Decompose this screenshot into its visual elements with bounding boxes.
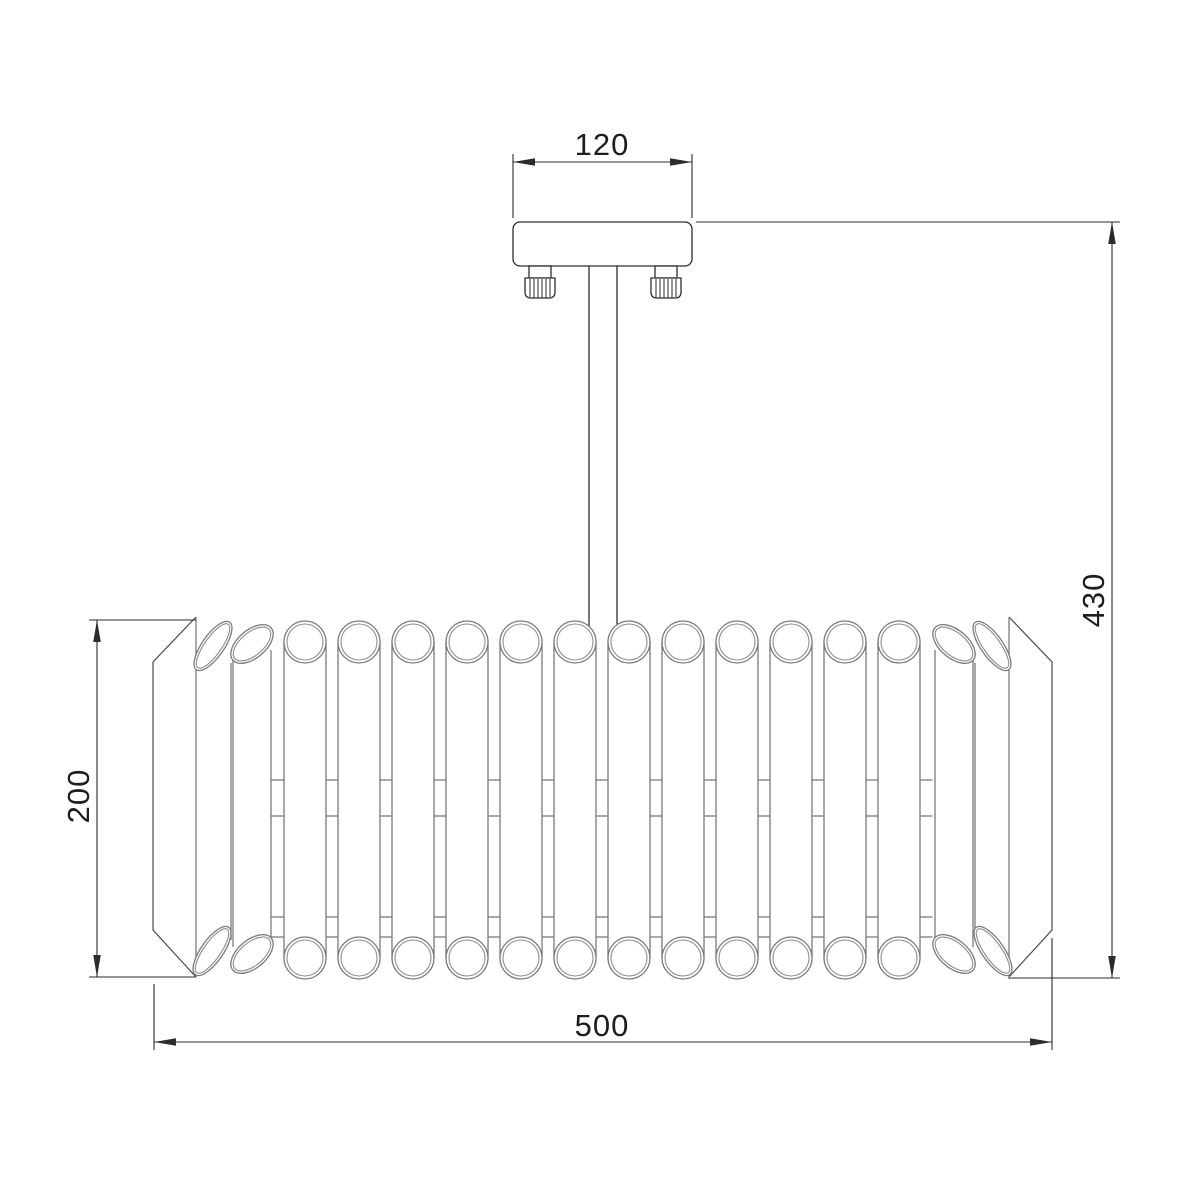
chandelier-dimension-drawing: 120 430 200 500 — [0, 0, 1200, 1200]
arrowhead-up — [1108, 222, 1116, 244]
tube — [338, 621, 380, 979]
dimension-canopy-width: 120 — [513, 127, 692, 218]
arrowhead-right — [670, 158, 692, 166]
tube — [662, 621, 704, 979]
tube — [608, 621, 650, 979]
dim-label-shade-height: 200 — [61, 769, 96, 824]
arrowhead-up — [93, 620, 101, 642]
shade-left-facet — [153, 617, 196, 977]
hanger-stem — [589, 266, 617, 626]
tube-shade — [153, 616, 1052, 981]
tube — [392, 621, 434, 979]
arrowhead-right — [1030, 1038, 1052, 1046]
tube — [284, 621, 326, 979]
dimension-overall-height: 430 — [696, 222, 1120, 978]
dim-label-canopy-width: 120 — [575, 127, 630, 162]
tube — [554, 621, 596, 979]
ceiling-canopy — [513, 222, 692, 298]
gap-connectors — [272, 780, 933, 937]
tube-angled — [966, 616, 1018, 981]
arrowhead-left — [513, 158, 535, 166]
tube — [878, 621, 920, 979]
tube-angled — [186, 616, 238, 981]
arrowhead-down — [93, 955, 101, 977]
drawing-canvas: 120 430 200 500 — [0, 0, 1200, 1200]
dim-label-shade-width: 500 — [575, 1008, 630, 1043]
shade-right-facet — [1009, 617, 1052, 977]
canopy-plate — [513, 222, 692, 266]
screw-right — [651, 266, 681, 298]
tube — [716, 621, 758, 979]
arrowhead-down — [1108, 956, 1116, 978]
tube — [500, 621, 542, 979]
dimension-shade-height: 200 — [61, 620, 196, 977]
tube — [824, 621, 866, 979]
tube — [770, 621, 812, 979]
screw-left — [525, 266, 555, 298]
dim-label-overall-height: 430 — [1076, 573, 1111, 628]
tube-angled — [224, 617, 280, 981]
tube-angled — [926, 617, 982, 981]
tube — [446, 621, 488, 979]
arrowhead-left — [154, 1038, 176, 1046]
